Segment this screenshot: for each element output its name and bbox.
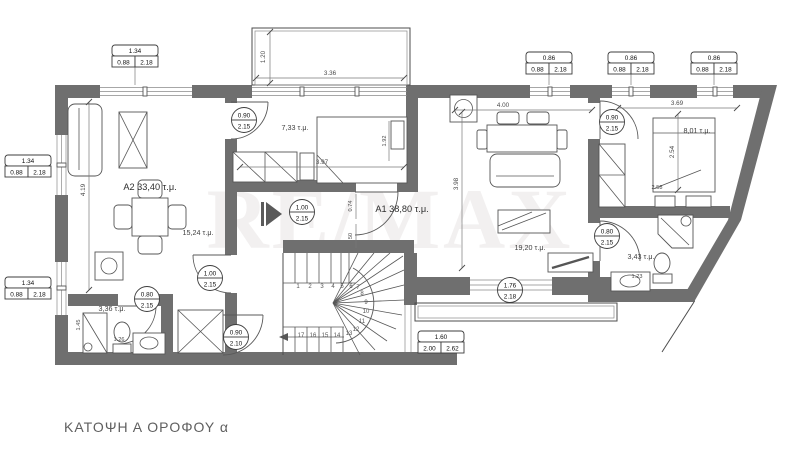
tag-height: 2.10 bbox=[230, 341, 243, 348]
dim-text: 3.98 bbox=[453, 177, 460, 190]
dim-text: 1.20 bbox=[260, 50, 267, 63]
dim-text: 1.92 bbox=[382, 136, 388, 147]
tag-width: 1.76 bbox=[504, 283, 517, 290]
dim-balcony-width: 3.36 bbox=[253, 70, 407, 81]
window-tag-top-1: 0.86 0.88 2.18 bbox=[526, 52, 572, 85]
bed-a2 bbox=[317, 117, 407, 183]
tag-height: 2.15 bbox=[606, 126, 619, 133]
sideboard-tv-a1 bbox=[548, 253, 593, 272]
tag-width: 1.34 bbox=[22, 158, 35, 165]
step-number: 6 bbox=[349, 284, 353, 290]
shaft-closet bbox=[178, 310, 223, 353]
window-left-lower bbox=[57, 262, 66, 315]
step-number: 12 bbox=[353, 327, 360, 333]
dim-balcony-depth: 1.20 bbox=[260, 29, 273, 86]
tag-height: 2.18 bbox=[33, 170, 46, 177]
dining-table-a1 bbox=[477, 112, 567, 152]
dim-bath-a1-width: 1.23 bbox=[632, 274, 643, 280]
tag-sill: 0.88 bbox=[531, 67, 544, 74]
step-number: 2 bbox=[308, 284, 312, 290]
window-tag-top-3: 0.86 0.88 2.18 bbox=[691, 52, 737, 85]
dim-text: 3.36 bbox=[324, 70, 337, 77]
window-top-1 bbox=[530, 87, 570, 96]
tag-height: 2.62 bbox=[446, 346, 459, 353]
tag-width: 0.86 bbox=[543, 55, 556, 62]
sofa-a2 bbox=[68, 104, 102, 176]
tv-cabinet-a1 bbox=[498, 210, 550, 233]
room-label-bedroom-a1: 8,01 τ.μ. bbox=[684, 126, 711, 135]
dim-text: 3.97 bbox=[316, 159, 329, 166]
tag-height: 2.18 bbox=[554, 67, 567, 74]
step-number: 4 bbox=[331, 284, 335, 290]
tag-sill: 0.88 bbox=[10, 170, 23, 177]
tag-width: 1.00 bbox=[204, 271, 217, 278]
staircase: 1 2 3 4 5 6 7 8 9 10 11 12 13 14 15 16 1… bbox=[279, 253, 411, 355]
step-number: 15 bbox=[322, 333, 329, 339]
dim-text: 2.58 bbox=[652, 185, 663, 191]
door-tag-entry-a2: 1.00 2.15 bbox=[198, 266, 223, 291]
dim-text: 4.19 bbox=[80, 183, 87, 196]
floor-plan-page: RE/MAX bbox=[0, 0, 800, 452]
washing-machine bbox=[95, 252, 123, 280]
tag-height: 2.18 bbox=[140, 60, 153, 67]
tag-width: 0.80 bbox=[601, 229, 614, 236]
tag-width: 0.86 bbox=[708, 55, 721, 62]
tag-sill: 0.88 bbox=[10, 292, 23, 299]
tag-sill: 0.88 bbox=[117, 60, 130, 67]
window-top-2 bbox=[612, 87, 650, 96]
apartment-a1-label: A1 38,80 τ.μ. bbox=[375, 204, 428, 214]
window-tag-left-lower: 1.34 0.88 2.18 bbox=[5, 277, 51, 299]
sink-a1 bbox=[611, 272, 650, 291]
tag-width: 0.86 bbox=[625, 55, 638, 62]
tag-height: 2.15 bbox=[601, 240, 614, 247]
tag-height: 2.18 bbox=[33, 292, 46, 299]
step-number: 1 bbox=[296, 284, 300, 290]
toilet-a1 bbox=[653, 253, 672, 283]
sink-a2 bbox=[133, 333, 165, 354]
dim-text: 4.00 bbox=[497, 102, 510, 109]
title-text: ΚΑΤΟΨΗ Α ΟΡΟΦΟΥ α bbox=[64, 419, 229, 435]
step-number: 13 bbox=[346, 331, 353, 337]
column-a1 bbox=[450, 95, 477, 122]
tag-height: 2.15 bbox=[204, 282, 217, 289]
room-label-living-a1: 19,20 τ.μ. bbox=[515, 243, 546, 252]
door-tag-shaft: 0.90 2.10 bbox=[224, 325, 249, 350]
step-number: 16 bbox=[310, 333, 317, 339]
bath-a2-fixtures bbox=[83, 313, 165, 354]
room-label-living-a2: 15,24 τ.μ. bbox=[183, 228, 214, 237]
tag-sill: 0.88 bbox=[696, 67, 709, 74]
door-tag-bath-a2: 0.80 2.15 bbox=[135, 287, 160, 312]
dim-text: 3.69 bbox=[671, 100, 684, 107]
window-top-left bbox=[100, 87, 192, 96]
tag-height: 2.18 bbox=[719, 67, 732, 74]
step-number: 5 bbox=[340, 284, 344, 290]
tag-height: 2.15 bbox=[296, 216, 309, 223]
step-number: 10 bbox=[363, 309, 370, 315]
door-tag-entry-a1: 1.00 2.15 bbox=[290, 200, 315, 225]
tag-width: 1.60 bbox=[435, 334, 448, 341]
tag-sill: 0.88 bbox=[613, 67, 626, 74]
window-tag-top-2: 0.86 0.88 2.18 bbox=[608, 52, 654, 85]
tag-width: 0.90 bbox=[230, 330, 243, 337]
tag-width: 1.34 bbox=[22, 280, 35, 287]
step-number: 9 bbox=[364, 300, 368, 306]
floor-plan-drawing: RE/MAX bbox=[0, 0, 800, 452]
window-tag-left-upper: 1.34 0.88 2.18 bbox=[5, 155, 51, 177]
dim-text: 0.74 bbox=[348, 201, 354, 212]
step-number: 17 bbox=[298, 333, 305, 339]
window-top-3 bbox=[697, 87, 733, 96]
dim-bedroom-a1-width: 3.69 bbox=[615, 100, 740, 111]
door-tag-bedroom-a2: 0.90 2.15 bbox=[232, 108, 257, 133]
room-label-bedroom-a2: 7,33 τ.μ. bbox=[282, 123, 309, 132]
shelf-a2 bbox=[119, 112, 147, 168]
dim-bed-a1-length: 2.58 bbox=[652, 185, 663, 191]
window-balcony-door bbox=[252, 87, 407, 96]
tag-width: 1.34 bbox=[129, 48, 142, 55]
window-tag-terrace: 1.60 2.00 2.62 bbox=[418, 331, 464, 353]
dim-text: 50 bbox=[348, 233, 354, 239]
room-label-bath-a2: 3,36 τ.μ. bbox=[99, 304, 126, 313]
shower-a2 bbox=[83, 313, 107, 353]
dim-bath-a2-height: 1.45 bbox=[76, 320, 82, 331]
step-number: 8 bbox=[360, 291, 364, 297]
step-number: 14 bbox=[334, 333, 341, 339]
apartment-a2-label: A2 33,40 τ.μ. bbox=[123, 182, 176, 192]
sofa-a1 bbox=[490, 154, 560, 187]
tag-width: 0.90 bbox=[238, 113, 251, 120]
terrace-south bbox=[415, 303, 617, 321]
door-tag-bedroom-a1: 0.90 2.15 bbox=[600, 110, 625, 135]
tag-height: 2.15 bbox=[141, 303, 154, 310]
shower-a1 bbox=[658, 215, 693, 248]
dim-text: 1.23 bbox=[632, 274, 643, 280]
door-tag-bath-a1: 0.80 2.15 bbox=[595, 224, 620, 249]
dim-bath-a2-width: 1.26 bbox=[114, 337, 125, 343]
nightstand-a2 bbox=[300, 153, 314, 180]
wardrobe-a1 bbox=[599, 144, 625, 207]
tag-width: 0.90 bbox=[606, 115, 619, 122]
dim-text: 1.26 bbox=[114, 337, 125, 343]
tag-width: 0.80 bbox=[141, 292, 154, 299]
window-tag-top-left: 1.34 0.88 2.18 bbox=[112, 45, 158, 85]
furniture-bedroom-a2 bbox=[233, 117, 407, 183]
step-number: 3 bbox=[320, 284, 324, 290]
drawing-title: ΚΑΤΟΨΗ Α ΟΡΟΦΟΥ α bbox=[64, 419, 229, 435]
dim-text: 1.45 bbox=[76, 320, 82, 331]
step-number: 11 bbox=[359, 319, 366, 325]
dim-text: 2.54 bbox=[669, 145, 676, 158]
door-tag-living-window-a1: 1.76 2.18 bbox=[498, 278, 523, 303]
room-label-bath-a1: 3,43 τ.μ. bbox=[628, 252, 655, 261]
nightstands-a1 bbox=[655, 196, 711, 207]
tag-height: 2.18 bbox=[504, 294, 517, 301]
tag-width: 1.00 bbox=[296, 205, 309, 212]
window-left-upper bbox=[57, 135, 66, 195]
tag-height: 2.18 bbox=[636, 67, 649, 74]
tag-height: 2.15 bbox=[238, 124, 251, 131]
tag-sill: 2.00 bbox=[423, 346, 436, 353]
